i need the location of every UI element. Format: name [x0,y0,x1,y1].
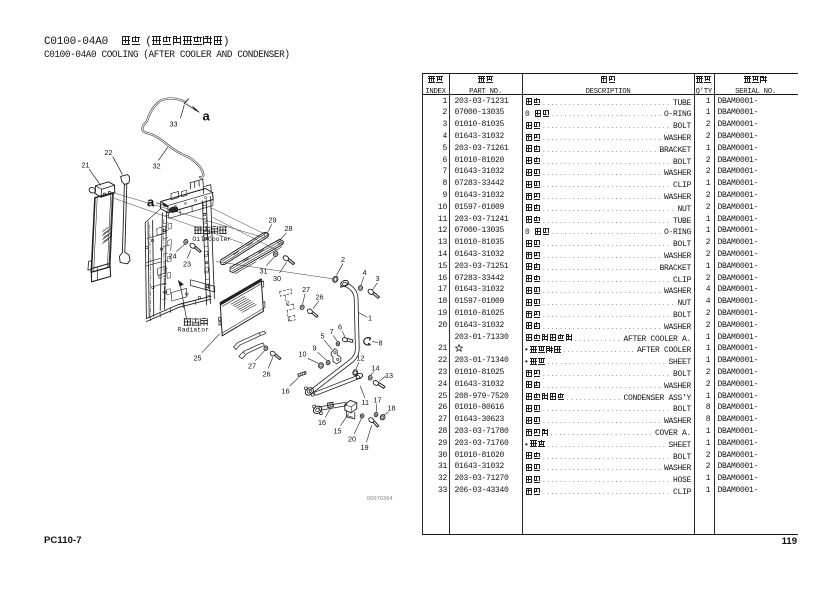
svg-text:33: 33 [170,120,178,129]
svg-text:17: 17 [374,396,382,405]
svg-text:8: 8 [379,339,383,348]
svg-text:18: 18 [388,404,396,413]
svg-text:32: 32 [153,162,161,171]
svg-text:16: 16 [282,387,290,396]
svg-text:12: 12 [357,354,365,363]
svg-text:24: 24 [169,252,177,261]
svg-text:15: 15 [334,427,342,436]
svg-text:26: 26 [316,293,324,302]
svg-text:2: 2 [341,255,345,264]
svg-text:6: 6 [338,323,342,332]
svg-text:27: 27 [302,285,310,294]
svg-text:29: 29 [269,216,277,225]
svg-text:2: 2 [287,301,290,307]
svg-text:00070364: 00070364 [367,496,393,502]
svg-text:28: 28 [285,224,293,233]
svg-text:3: 3 [376,274,380,283]
svg-text:4: 4 [363,268,367,277]
svg-text:30: 30 [273,274,281,283]
svg-text:10: 10 [299,350,307,359]
svg-text:Oil Cooler: Oil Cooler [192,236,231,243]
svg-text:14: 14 [372,364,380,373]
svg-text:16: 16 [318,418,326,427]
svg-text:23: 23 [183,260,191,269]
svg-text:21: 21 [82,161,90,170]
svg-text:5: 5 [321,332,325,341]
svg-text:11: 11 [362,398,370,407]
svg-text:31: 31 [260,267,268,276]
svg-text:Radiator: Radiator [178,327,209,334]
svg-text:1: 1 [368,314,372,323]
svg-text:27: 27 [248,362,256,371]
svg-text:20: 20 [348,435,356,444]
svg-text:9: 9 [313,344,317,353]
svg-text:25: 25 [194,354,202,363]
svg-text:19: 19 [361,443,369,452]
svg-text:22: 22 [105,148,113,157]
svg-text:7: 7 [330,327,334,336]
svg-text:13: 13 [385,371,393,380]
svg-text:a: a [203,109,211,124]
svg-text:a: a [147,195,155,210]
svg-text:26: 26 [263,370,271,379]
svg-text:1: 1 [288,317,291,323]
